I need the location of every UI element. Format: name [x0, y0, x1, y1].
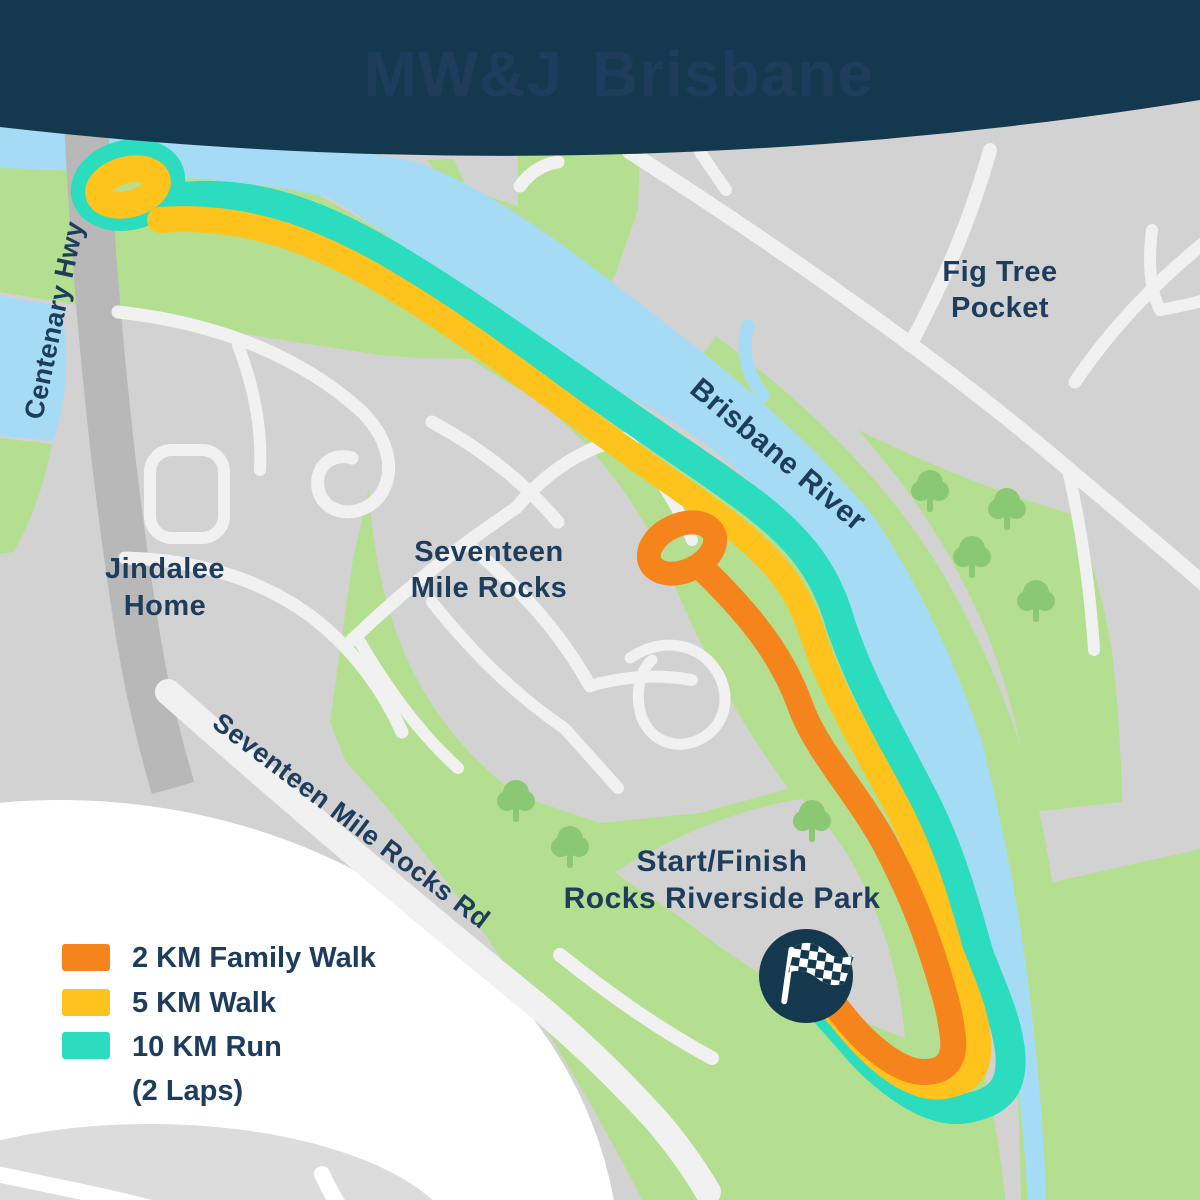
legend-swatch-10km [62, 1032, 110, 1059]
legend-label-5km: 5 KM Walk [132, 987, 277, 1019]
label-seventeen-line1: Seventeen [414, 536, 564, 568]
label-jindalee-line1: Jindalee [105, 553, 225, 585]
label-fig-tree-pocket-line1: Fig Tree [942, 256, 1057, 288]
label-jindalee-line2: Home [124, 590, 207, 622]
park-bottom-right [1040, 848, 1200, 1200]
header-city-title: Brisbane [592, 38, 874, 110]
legend-label-2km: 2 KM Family Walk [132, 942, 377, 974]
legend-swatch-5km [62, 989, 110, 1016]
label-seventeen-line2: Mile Rocks [411, 572, 568, 604]
legend-label-10km: 10 KM Run [132, 1031, 282, 1063]
label-fig-tree-pocket-line2: Pocket [951, 292, 1049, 324]
legend-label-10km-line2: (2 Laps) [132, 1075, 243, 1107]
legend-swatch-2km [62, 944, 110, 971]
course-map: Centenary Hwy Fig Tree Pocket Brisbane R… [0, 0, 1200, 1200]
label-start-finish-line2: Rocks Riverside Park [564, 882, 881, 915]
label-start-finish-line1: Start/Finish [636, 845, 807, 878]
brand-logo: MW&J [363, 38, 563, 110]
